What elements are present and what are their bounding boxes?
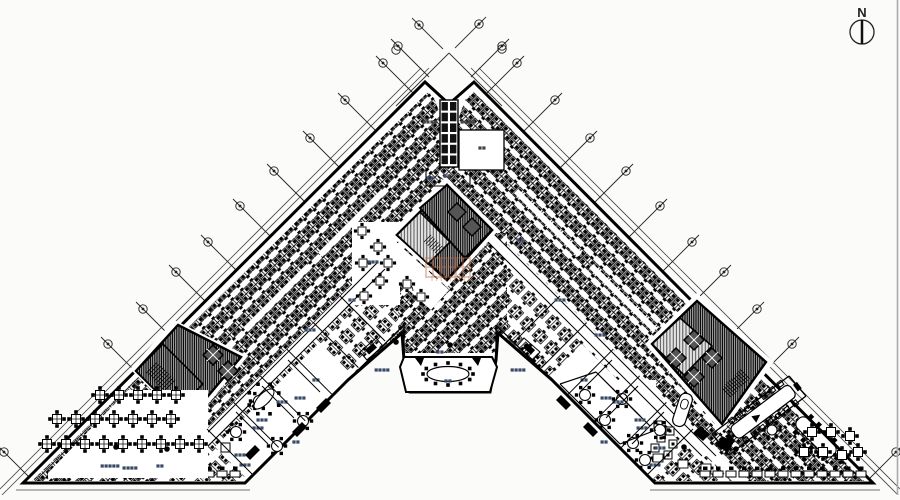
svg-text:N: N [857,5,866,20]
